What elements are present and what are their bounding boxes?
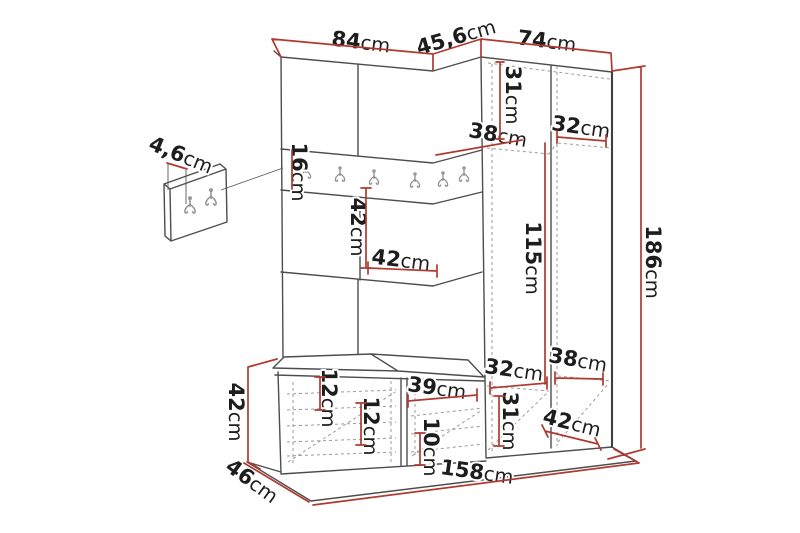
dim-label-74cm: 74cm — [516, 25, 577, 56]
dim-label-84cm: 84cm — [330, 26, 391, 57]
coat-hook-icon — [438, 171, 447, 186]
dim-label-10cm: 10cm — [419, 418, 443, 477]
coat-hook-icon — [335, 166, 344, 181]
dim-label-31cm-bottom: 31cm — [498, 392, 522, 451]
coat-hook-icon — [369, 169, 378, 184]
diagram-canvas: 84cm 45,6cm 74cm 4,6cm 16cm 31cm 38cm 32… — [0, 0, 800, 533]
dimension-labels: 84cm 45,6cm 74cm 4,6cm 16cm 31cm 38cm 32… — [145, 14, 665, 508]
dim-label-38cm-bottom: 38cm — [547, 343, 609, 377]
dim-label-31cm-top: 31cm — [501, 66, 525, 125]
coat-hook-icon — [206, 188, 216, 205]
dim-label-4-6cm: 4,6cm — [145, 131, 216, 178]
dim-label-42cm-left: 42cm — [224, 383, 248, 442]
coat-hook-icon — [459, 166, 468, 181]
dim-label-16cm: 16cm — [287, 143, 311, 202]
dim-label-186cm: 186cm — [641, 225, 665, 299]
detail-pointer-line — [221, 168, 283, 190]
hook-rail — [301, 163, 468, 187]
hook-panel-detail — [164, 164, 283, 241]
dim-label-115cm: 115cm — [521, 221, 545, 295]
furniture-dimension-diagram: 84cm 45,6cm 74cm 4,6cm 16cm 31cm 38cm 32… — [0, 0, 800, 533]
dim-label-12cm-b: 12cm — [359, 397, 383, 456]
dim-label-42cm-bottom-right: 42cm — [540, 404, 603, 442]
coat-hook-icon — [410, 172, 419, 187]
dim-label-32cm-bottom: 32cm — [483, 354, 545, 386]
